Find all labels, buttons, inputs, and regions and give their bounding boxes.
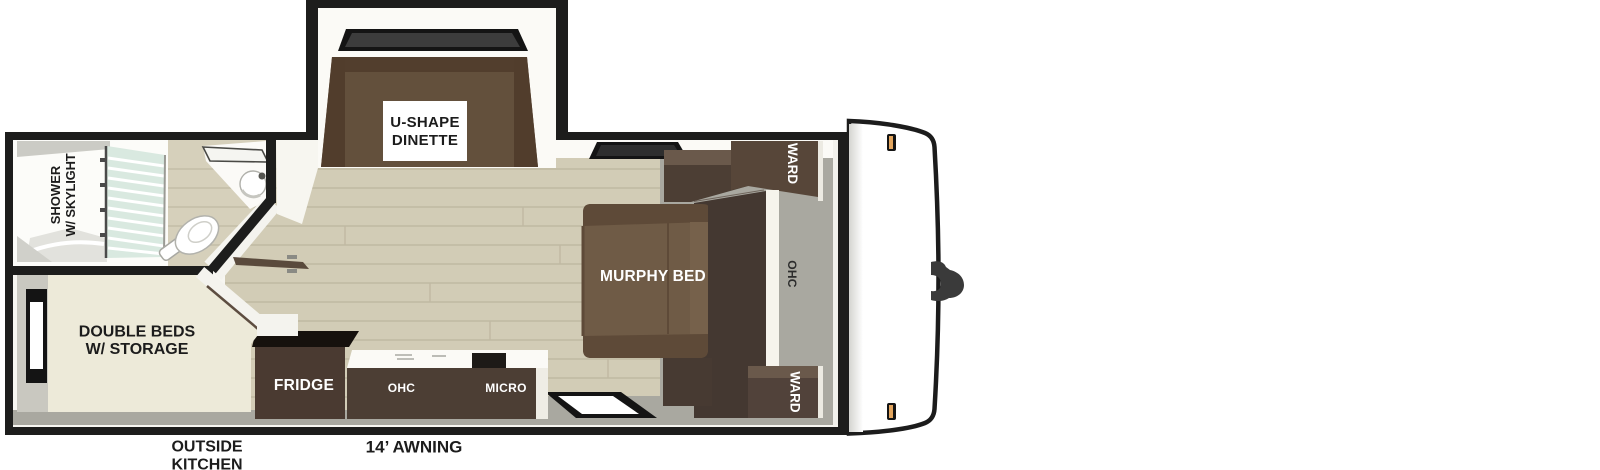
svg-text:DINETTE: DINETTE xyxy=(392,132,458,149)
svg-text:W/ SKYLIGHT: W/ SKYLIGHT xyxy=(63,153,78,236)
svg-text:OUTSIDE: OUTSIDE xyxy=(171,439,242,456)
svg-text:W/ STORAGE: W/ STORAGE xyxy=(86,341,189,358)
svg-text:WARD: WARD xyxy=(785,143,800,184)
svg-text:14’ AWNING: 14’ AWNING xyxy=(366,438,463,457)
svg-text:DOUBLE BEDS: DOUBLE BEDS xyxy=(79,324,196,341)
svg-text:OHC: OHC xyxy=(388,381,416,395)
svg-text:SHOWER: SHOWER xyxy=(48,165,63,224)
svg-text:KITCHEN: KITCHEN xyxy=(171,457,242,470)
svg-text:OHC: OHC xyxy=(785,260,799,288)
svg-text:FRIDGE: FRIDGE xyxy=(274,377,334,394)
svg-text:MICRO: MICRO xyxy=(485,381,527,395)
svg-text:MURPHY BED: MURPHY BED xyxy=(600,268,706,285)
svg-text:WARD: WARD xyxy=(787,371,802,412)
svg-text:U-SHAPE: U-SHAPE xyxy=(390,114,460,131)
